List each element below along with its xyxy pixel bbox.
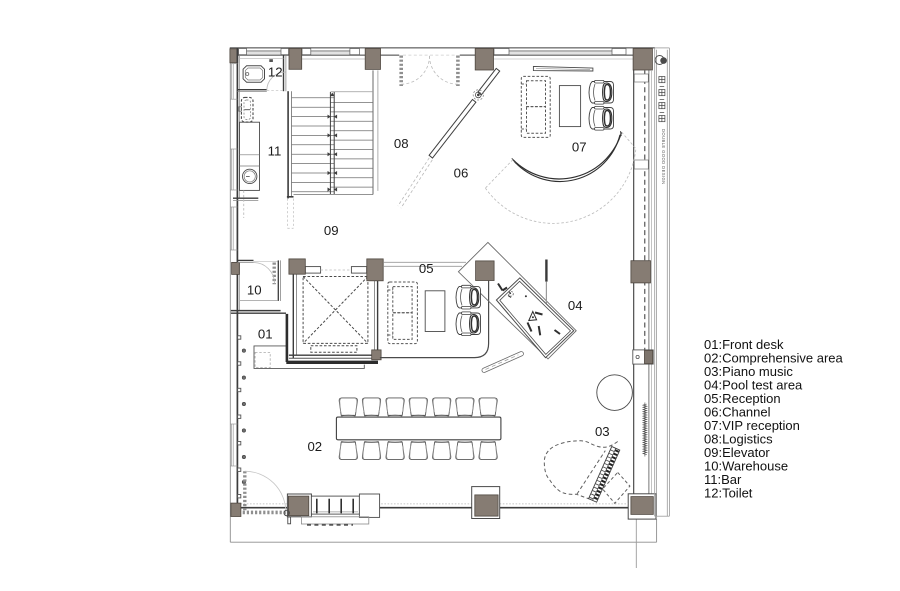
- svg-text:12:Toilet: 12:Toilet: [704, 485, 753, 500]
- svg-text:06: 06: [454, 166, 469, 181]
- svg-text:03: 03: [595, 424, 610, 439]
- svg-text:09: 09: [324, 223, 339, 238]
- svg-text:05: 05: [419, 261, 434, 276]
- svg-text:04: 04: [568, 298, 583, 313]
- svg-text:11: 11: [268, 144, 282, 159]
- svg-text:07: 07: [572, 140, 587, 155]
- svg-text:DOUBLE GOOD DESIGN: DOUBLE GOOD DESIGN: [661, 129, 666, 185]
- svg-text:10: 10: [247, 283, 262, 298]
- svg-text:08: 08: [394, 136, 409, 151]
- svg-text:01: 01: [258, 327, 273, 342]
- svg-text:12: 12: [268, 65, 283, 80]
- svg-text:02: 02: [307, 439, 322, 454]
